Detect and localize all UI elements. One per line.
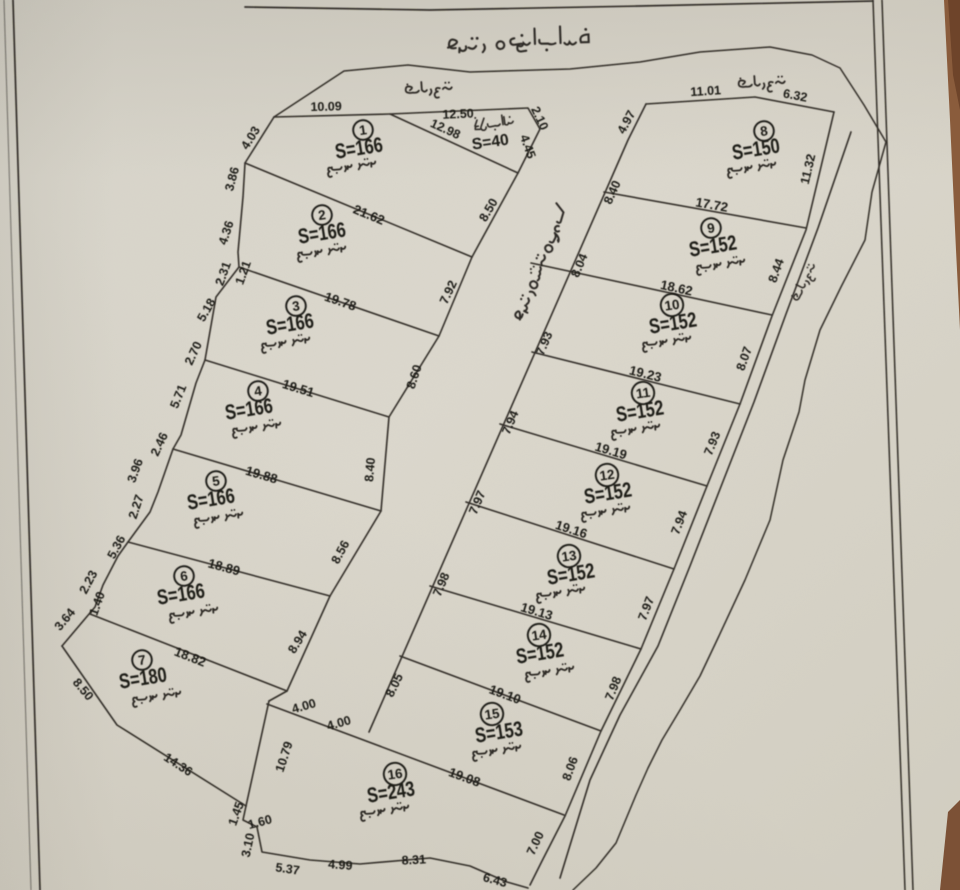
svg-text:15: 15 [484,706,501,723]
svg-text:12.50: 12.50 [442,106,474,121]
svg-text:8.40: 8.40 [362,457,378,483]
svg-text:10.09: 10.09 [310,99,342,114]
svg-text:4.99: 4.99 [328,857,353,873]
svg-text:11.01: 11.01 [690,83,721,99]
svg-text:8.31: 8.31 [401,852,426,867]
